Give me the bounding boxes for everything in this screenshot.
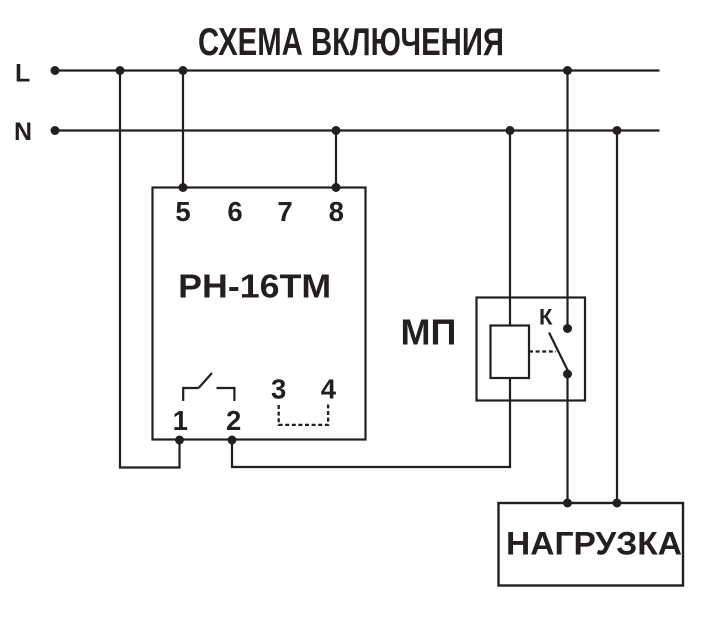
svg-text:СХЕМА ВКЛЮЧЕНИЯ: СХЕМА ВКЛЮЧЕНИЯ xyxy=(198,21,504,64)
svg-text:L: L xyxy=(15,60,30,88)
svg-text:РН-16ТМ: РН-16ТМ xyxy=(178,268,331,305)
svg-text:5: 5 xyxy=(175,196,190,227)
svg-text:6: 6 xyxy=(227,196,242,227)
svg-text:3: 3 xyxy=(271,374,286,405)
svg-text:2: 2 xyxy=(226,405,241,436)
svg-text:НАГРУЗКА: НАГРУЗКА xyxy=(506,526,682,562)
svg-text:N: N xyxy=(14,118,32,146)
svg-text:7: 7 xyxy=(277,196,292,227)
svg-text:1: 1 xyxy=(173,405,188,436)
svg-text:4: 4 xyxy=(321,374,337,405)
svg-text:К: К xyxy=(539,305,553,330)
svg-text:МП: МП xyxy=(401,312,457,353)
svg-text:8: 8 xyxy=(329,196,344,227)
